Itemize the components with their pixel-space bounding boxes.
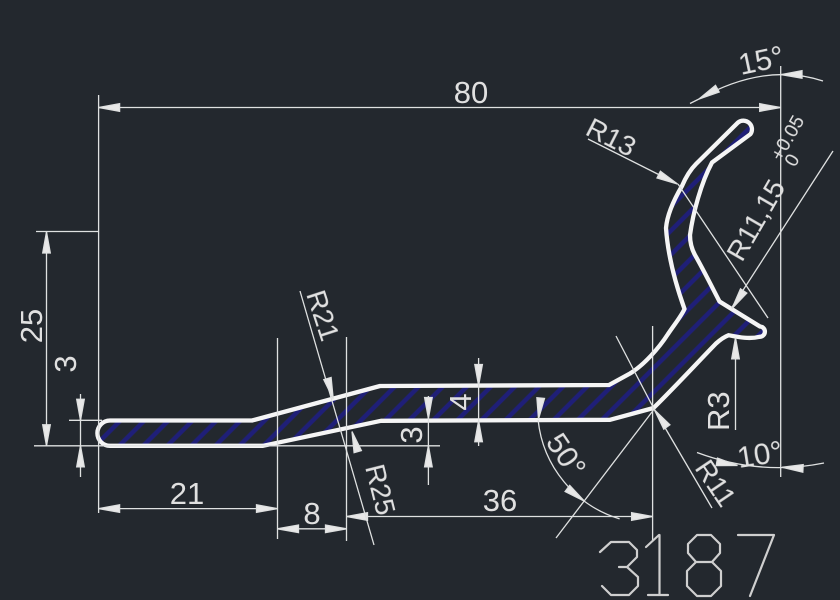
svg-text:21: 21 — [170, 476, 204, 511]
svg-text:10°: 10° — [735, 435, 785, 475]
svg-text:36: 36 — [483, 483, 517, 518]
svg-text:3: 3 — [394, 426, 429, 443]
svg-text:25: 25 — [14, 309, 49, 343]
svg-text:80: 80 — [454, 75, 488, 110]
svg-text:R3: R3 — [701, 391, 736, 431]
svg-text:8: 8 — [303, 496, 320, 531]
svg-text:4: 4 — [443, 393, 478, 410]
svg-text:3: 3 — [48, 355, 83, 372]
